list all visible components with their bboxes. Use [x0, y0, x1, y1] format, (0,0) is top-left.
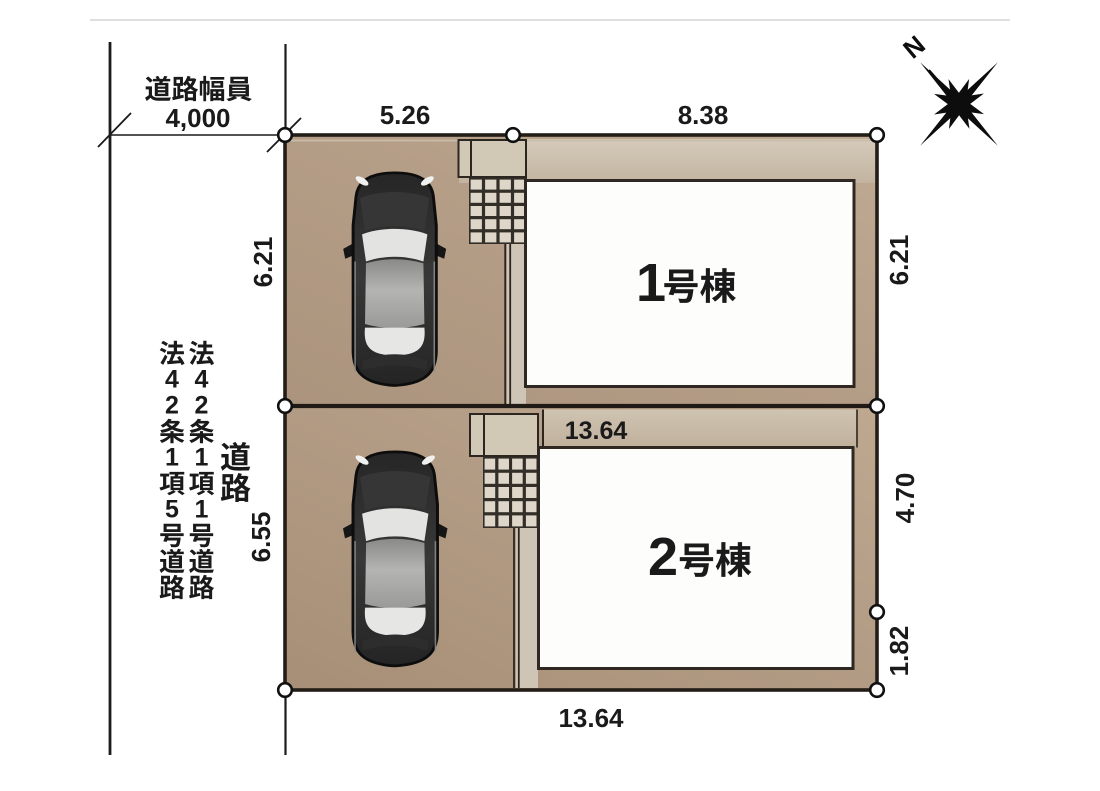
svg-text:2: 2: [195, 391, 209, 419]
svg-text:5: 5: [165, 495, 179, 523]
svg-text:4: 4: [165, 365, 179, 393]
svg-text:2: 2: [165, 391, 179, 419]
svg-text:5.26: 5.26: [380, 100, 431, 130]
svg-text:4,000: 4,000: [165, 103, 230, 133]
svg-text:1: 1: [165, 443, 179, 471]
svg-text:8.38: 8.38: [678, 100, 729, 130]
svg-text:1.82: 1.82: [884, 626, 914, 677]
svg-text:4.70: 4.70: [890, 473, 920, 524]
svg-text:6.21: 6.21: [248, 237, 278, 288]
svg-text:4: 4: [195, 365, 209, 393]
svg-text:13.64: 13.64: [565, 417, 628, 445]
svg-text:1: 1: [195, 495, 209, 523]
svg-text:2: 2: [648, 527, 678, 587]
svg-text:1: 1: [636, 253, 666, 313]
svg-text:6.21: 6.21: [884, 235, 914, 286]
svg-text:13.64: 13.64: [558, 703, 624, 733]
svg-text:6.55: 6.55: [246, 512, 276, 563]
svg-text:1: 1: [195, 443, 209, 471]
